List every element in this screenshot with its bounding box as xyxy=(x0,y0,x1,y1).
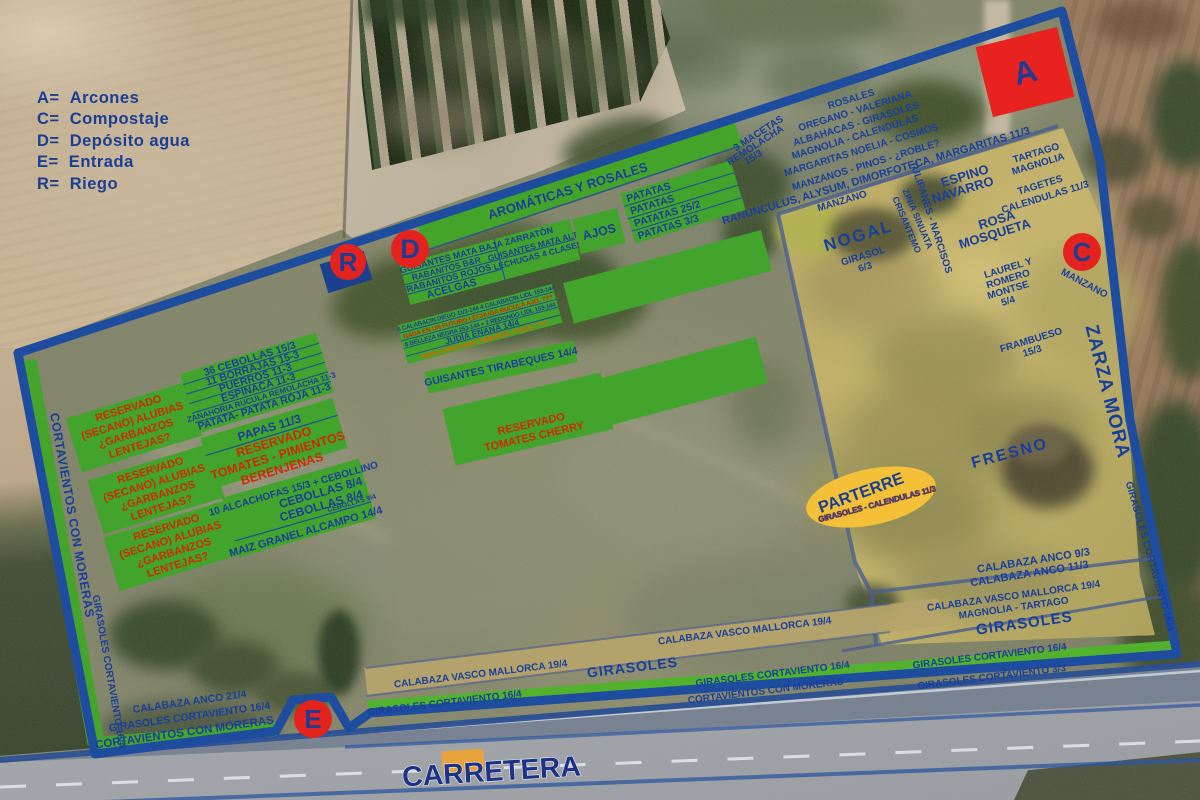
svg-text:D: D xyxy=(400,234,420,264)
svg-text:R: R xyxy=(339,247,358,277)
svg-text:D= Depósito agua: D= Depósito agua xyxy=(37,132,190,150)
svg-text:R= Riego: R= Riego xyxy=(37,175,118,193)
svg-text:C: C xyxy=(1073,237,1092,267)
svg-text:E: E xyxy=(304,704,321,734)
svg-text:E= Entrada: E= Entrada xyxy=(37,153,134,171)
svg-text:C= Compostaje: C= Compostaje xyxy=(37,110,169,128)
svg-text:A= Arcones: A= Arcones xyxy=(37,89,139,107)
